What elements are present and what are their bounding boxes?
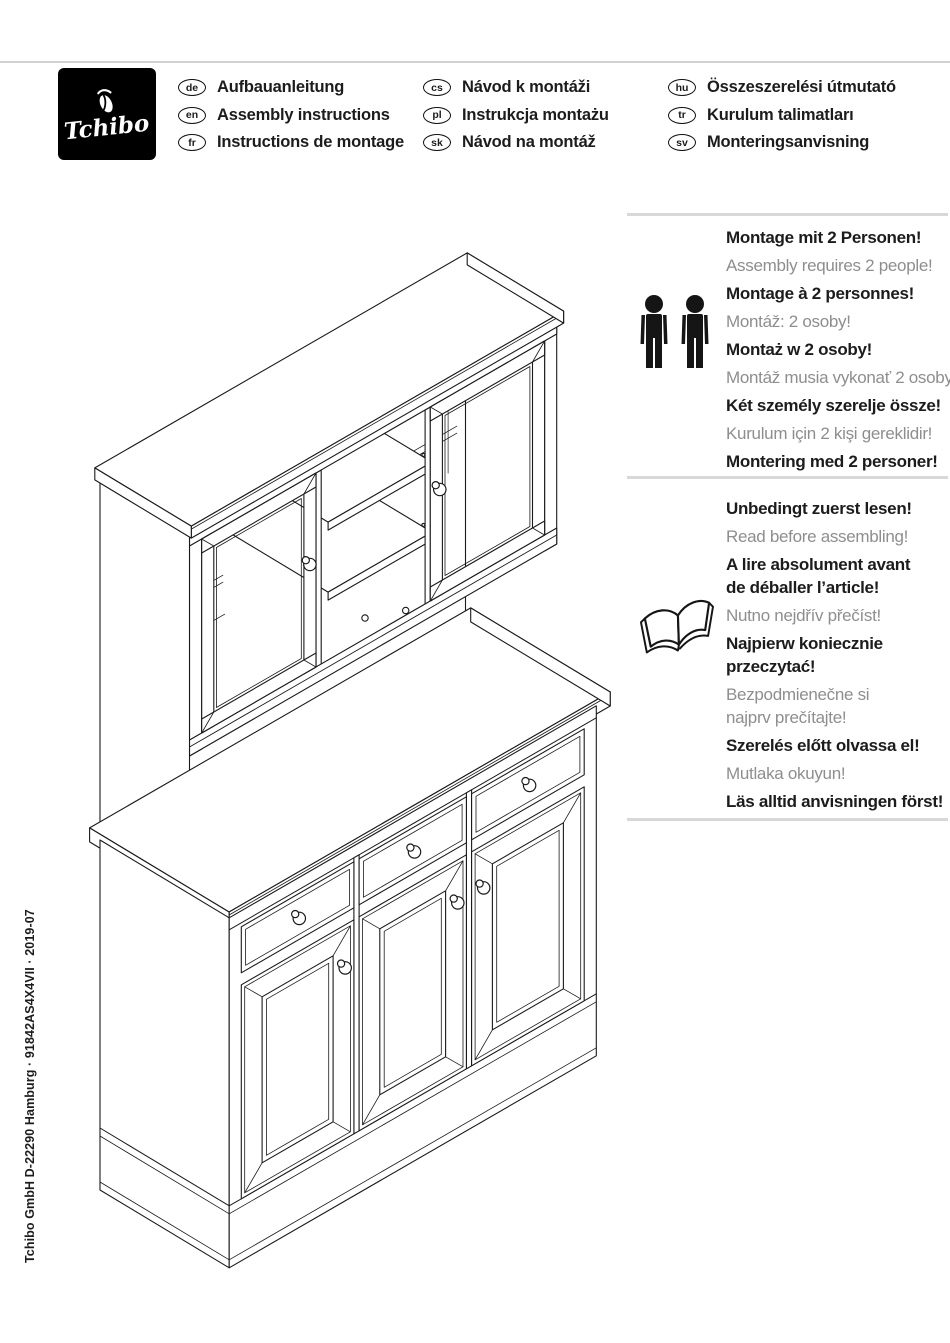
header-divider [0, 61, 950, 63]
language-code-badge: en [178, 107, 206, 124]
notice-line: Montage mit 2 Personen! [726, 226, 950, 249]
notice-line: Kurulum için 2 kişi gereklidir! [726, 422, 950, 445]
notice-line: Montering med 2 personer! [726, 450, 950, 473]
language-code-badge: fr [178, 134, 206, 151]
language-label: Monteringsanvisning [707, 133, 869, 152]
instruction-cover-page: Tchibo de Aufbauanleitung en Assembly in… [0, 0, 950, 1343]
language-row: hu Összeszerelési útmutató [668, 78, 896, 97]
notice-line: Montage à 2 personnes! [726, 282, 950, 305]
language-code-badge: hu [668, 79, 696, 96]
language-row: tr Kurulum talimatları [668, 106, 896, 125]
notice-line: Läs alltid anvisningen först! [726, 790, 950, 813]
brand-logo: Tchibo [58, 68, 156, 160]
language-row: sk Návod na montáž [423, 133, 609, 152]
notice-line: Szerelés előtt olvassa el! [726, 734, 950, 757]
language-label: Assembly instructions [217, 106, 390, 125]
notice-line: Montáž musia vykonať 2 osoby! [726, 366, 950, 389]
language-label: Návod k montáži [462, 78, 590, 97]
notice-line: Nutno nejdřív přečíst! [726, 604, 950, 627]
language-code-badge: tr [668, 107, 696, 124]
language-label: Instrukcja montażu [462, 106, 609, 125]
brand-wordmark: Tchibo [63, 109, 151, 145]
language-row: pl Instrukcja montażu [423, 106, 609, 125]
language-legend-column-3: hu Összeszerelési útmutató tr Kurulum ta… [668, 78, 896, 161]
open-book-icon [636, 597, 716, 669]
language-label: Kurulum talimatları [707, 106, 854, 125]
divider-rule [627, 476, 948, 479]
notice-line: Bezpodmienečne si najprv prečítajte! [726, 683, 950, 729]
read-first-notice: Unbedingt zuerst lesen! Read before asse… [627, 497, 950, 818]
language-code-badge: cs [423, 79, 451, 96]
imprint-vertical-text: Tchibo GmbH D-22290 Hamburg · 91842AS4X4… [23, 909, 37, 1263]
two-person-notice: Montage mit 2 Personen! Assembly require… [627, 226, 950, 478]
notice-line: Mutlaka okuyun! [726, 762, 950, 785]
notice-line: Assembly requires 2 people! [726, 254, 950, 277]
notice-line: Két személy szerelje össze! [726, 394, 950, 417]
language-legend-column-1: de Aufbauanleitung en Assembly instructi… [178, 78, 404, 161]
language-row: en Assembly instructions [178, 106, 404, 125]
language-row: sv Monteringsanvisning [668, 133, 896, 152]
language-row: fr Instructions de montage [178, 133, 404, 152]
language-label: Összeszerelési útmutató [707, 78, 896, 97]
notice-line: Najpierw koniecznie przeczytać! [726, 632, 950, 678]
language-legend-column-2: cs Návod k montáži pl Instrukcja montażu… [423, 78, 609, 161]
divider-rule [627, 213, 948, 216]
language-row: de Aufbauanleitung [178, 78, 404, 97]
notice-line: A lire absolument avant de déballer l’ar… [726, 553, 950, 599]
divider-rule [627, 818, 948, 821]
language-code-badge: sv [668, 134, 696, 151]
notice-line: Montaż w 2 osoby! [726, 338, 950, 361]
notice-line: Montáž: 2 osoby! [726, 310, 950, 333]
language-row: cs Návod k montáži [423, 78, 609, 97]
tchibo-emblem-icon [88, 88, 126, 116]
two-people-icon [633, 294, 717, 378]
language-code-badge: pl [423, 107, 451, 124]
language-code-badge: sk [423, 134, 451, 151]
notice-line: Read before assembling! [726, 525, 950, 548]
language-label: Instructions de montage [217, 133, 404, 152]
language-label: Aufbauanleitung [217, 78, 344, 97]
notice-line: Unbedingt zuerst lesen! [726, 497, 950, 520]
language-label: Návod na montáž [462, 133, 596, 152]
language-code-badge: de [178, 79, 206, 96]
